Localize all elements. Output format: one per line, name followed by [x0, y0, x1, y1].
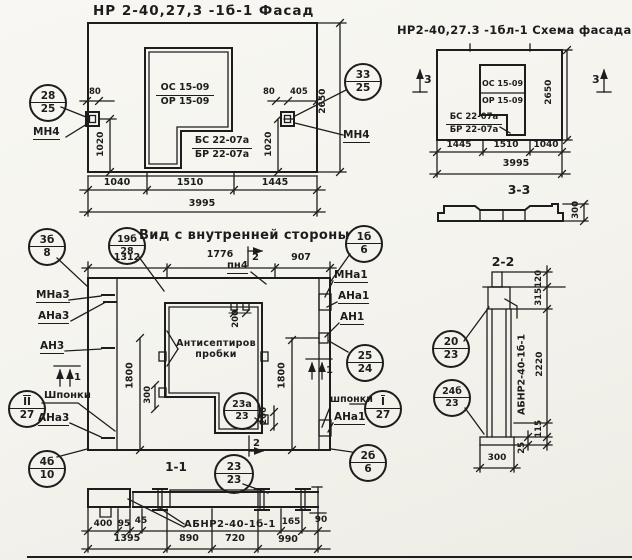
dim-1510-schema: 1510: [486, 140, 526, 150]
callout-den: 6: [351, 463, 385, 480]
dim-405: 405: [290, 88, 308, 98]
facade-block-mark: БС 22-07а БР 22-07а: [192, 136, 252, 161]
callout-num: 23: [216, 456, 252, 474]
label-abnr-horizontal: АБНР2-40-1б-1: [184, 519, 276, 531]
callout-num: I: [366, 392, 400, 409]
callout-num: 19б: [110, 229, 144, 246]
callout-section-1-1: 23 23: [214, 454, 254, 494]
section-3-3-title: 3-3: [502, 183, 536, 197]
callout-den: 24: [348, 363, 382, 380]
dim-80-left: 80: [89, 88, 101, 98]
callout-num: 28: [31, 86, 65, 103]
label-mna1: МНа1: [334, 269, 368, 283]
label-ana3-bottom: АНа3: [38, 412, 69, 426]
callout-num: 24б: [435, 381, 469, 398]
section-2-2-linework: [464, 266, 565, 472]
dim-907: 907: [281, 253, 321, 264]
label-an1: АН1: [340, 311, 364, 325]
dim-25: 25: [518, 428, 528, 468]
dim-300-base: 300: [477, 453, 517, 463]
dim-115: 115: [535, 409, 545, 449]
dim-2220: 2220: [535, 344, 545, 384]
section-marker-2-bottom: 2: [253, 438, 260, 450]
note-antiseptic: Антисептиров пробки: [174, 339, 258, 361]
callout-den: 23: [216, 474, 252, 492]
inner-view-title: Вид с внутренней стороны: [139, 229, 350, 244]
schema-title: НР2-40,27.3 -1бл-1 Схема фасада: [397, 24, 632, 37]
schema-block-mark-bottom: БР 22-07а: [446, 126, 502, 136]
schema-block-mark: БС 22-07а БР 22-07а: [446, 113, 502, 136]
callout-den: 10: [30, 469, 64, 486]
dim-890: 890: [169, 534, 209, 545]
callout-inner-bottom-left: 4б 10: [28, 450, 66, 488]
label-ana1-bottom: АНа1: [334, 411, 365, 425]
callout-den: 23: [434, 349, 468, 366]
section-marker-1-left: 1: [74, 372, 81, 384]
dim-1510: 1510: [170, 178, 210, 189]
dim-720: 720: [215, 534, 255, 545]
dim-990: 990: [268, 535, 308, 546]
label-keys-left: Шпонки: [44, 390, 91, 402]
callout-num: 25: [348, 346, 382, 363]
facade-title: НР 2-40,27,3 -1б-1 Фасад: [93, 4, 314, 20]
facade-window-mark: ОС 15-09 ОР 15-09: [156, 83, 214, 108]
callout-facade-left: 28 25: [29, 84, 67, 122]
callout-inner-top-right: 1б 6: [345, 225, 383, 263]
callout-num: 20: [434, 332, 468, 349]
label-pn4: пн4: [227, 260, 248, 274]
facade-block-mark-top: БС 22-07а: [192, 136, 252, 149]
callout-num: 2б: [351, 446, 385, 463]
dim-165: 165: [276, 517, 306, 527]
dim-200-top: 200: [232, 299, 242, 339]
dim-2650-facade: 2650: [318, 81, 328, 121]
label-ana3-top: АНа3: [38, 310, 69, 324]
anchor-label-mn4-left: МН4: [33, 126, 60, 140]
label-abnr-vertical: АБНР2-40-1б-1: [518, 319, 529, 429]
blueprint-sheet: НР 2-40,27,3 -1б-1 Фасад ОС 15-09 ОР 15-…: [0, 0, 632, 560]
callout-num: 3б: [30, 230, 64, 247]
note-line-2: пробки: [174, 350, 258, 361]
dim-1800-left: 1800: [126, 355, 137, 395]
callout-inner-bottom-right: 2б 6: [349, 444, 387, 482]
callout-den: 25: [31, 103, 65, 120]
facade-block-mark-bottom: БР 22-07а: [192, 150, 252, 161]
callout-den: 6: [347, 244, 381, 261]
dim-300-left: 300: [144, 375, 154, 415]
schema-window-mark-bottom: ОР 15-09: [481, 96, 524, 105]
dim-3995-schema: 3995: [496, 159, 536, 170]
callout-num: 1б: [347, 227, 381, 244]
dim-1040-schema: 1040: [526, 140, 566, 150]
dim-2650-schema: 2650: [544, 72, 554, 112]
callout-den: 25: [346, 82, 380, 99]
callout-den: 27: [366, 409, 400, 426]
dim-200-window: 200: [260, 396, 270, 436]
section-1-1-title: 1-1: [160, 461, 192, 475]
callout-den: 23: [435, 398, 469, 415]
callout-num: II: [10, 392, 44, 409]
facade-window-mark-bottom: ОР 15-09: [156, 97, 214, 108]
dim-1445: 1445: [255, 178, 295, 189]
label-mna3: МНа3: [36, 289, 70, 303]
dim-1020-left: 1020: [96, 124, 106, 164]
section-marker-3-left: 3: [424, 74, 432, 87]
callout-inner-top-left-1: 3б 8: [28, 228, 66, 266]
label-an3: АН3: [40, 340, 64, 354]
schema-block-mark-top: БС 22-07а: [446, 113, 502, 125]
dim-45: 45: [131, 516, 151, 526]
anchor-label-mn4-right: МН4: [343, 129, 370, 143]
section-marker-1-right: 1: [326, 365, 333, 377]
label-ana1-top: АНа1: [338, 290, 369, 304]
callout-keys-right: I 27: [364, 390, 402, 428]
dim-315: 315: [535, 277, 545, 317]
facade-window-mark-top: ОС 15-09: [156, 83, 214, 96]
callout-window-plug: 23а 23: [223, 392, 261, 430]
callout-inner-right-mid: 25 24: [346, 344, 384, 382]
dim-1395: 1395: [107, 534, 147, 545]
callout-den: 23: [225, 411, 259, 428]
dim-1020-right: 1020: [264, 124, 274, 164]
section-marker-2-top: 2: [252, 252, 259, 264]
dim-1445-schema: 1445: [439, 140, 479, 150]
schema-window-mark-top: ОС 15-09: [481, 79, 524, 88]
callout-num: 23а: [225, 394, 259, 411]
callout-section-2-2-top: 20 23: [432, 330, 470, 368]
section-marker-3-right: 3: [592, 74, 600, 87]
dim-1040: 1040: [97, 178, 137, 189]
callout-facade-right: 33 25: [344, 63, 382, 101]
dim-90: 90: [308, 515, 334, 525]
section-2-2-title: 2-2: [485, 255, 521, 269]
callout-num: 33: [346, 65, 380, 82]
callout-den: 8: [30, 247, 64, 264]
dim-80-right: 80: [263, 88, 275, 98]
callout-num: 4б: [30, 452, 64, 469]
dim-300-schema: 300: [572, 190, 582, 230]
callout-section-2-2-bottom: 24б 23: [433, 379, 471, 417]
dim-1312: 1312: [107, 253, 147, 264]
dim-3995-facade: 3995: [182, 199, 222, 210]
dim-1800-right: 1800: [278, 355, 289, 395]
